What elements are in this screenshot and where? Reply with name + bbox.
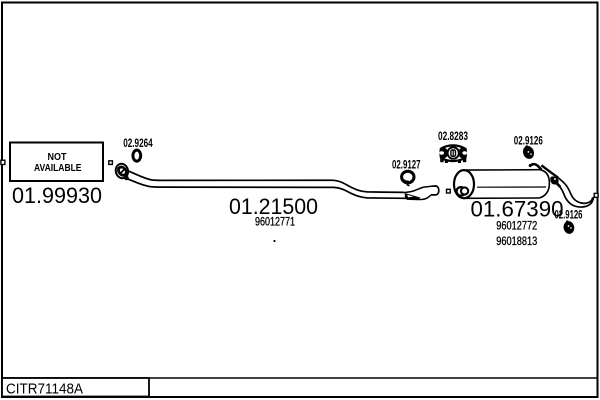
svg-text:96012772: 96012772 bbox=[496, 218, 537, 232]
svg-text:02.8283: 02.8283 bbox=[438, 131, 468, 143]
svg-text:02.9127: 02.9127 bbox=[392, 159, 421, 171]
svg-text:AVAILABLE: AVAILABLE bbox=[34, 163, 82, 174]
svg-text:02.9126: 02.9126 bbox=[555, 210, 583, 222]
svg-text:NOT: NOT bbox=[48, 152, 67, 163]
svg-text:CITR71148A: CITR71148A bbox=[6, 382, 83, 398]
svg-text:96018813: 96018813 bbox=[496, 234, 537, 248]
svg-text:02.9264: 02.9264 bbox=[123, 138, 153, 150]
svg-text:02.9126: 02.9126 bbox=[514, 136, 543, 148]
svg-text:96012771: 96012771 bbox=[255, 215, 295, 229]
svg-text:01.99930: 01.99930 bbox=[12, 183, 102, 208]
